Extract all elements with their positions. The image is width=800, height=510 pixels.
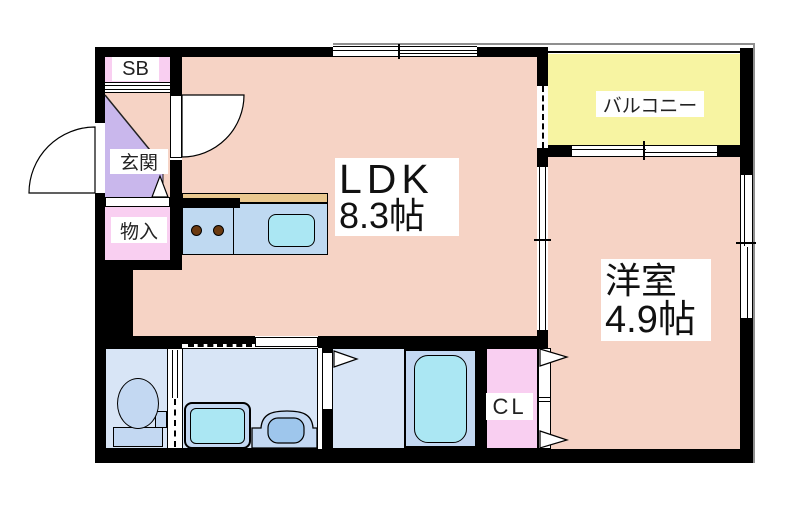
wall-block-left — [95, 260, 133, 348]
ldk-western-sliding-door-tick — [534, 239, 551, 241]
partition-dashed-line — [542, 86, 544, 148]
ldk-western-sliding-door-pane — [539, 167, 540, 330]
toilet-door-pane — [177, 350, 178, 398]
wall-block-top — [133, 260, 182, 270]
wall-left-upper — [95, 47, 105, 123]
wall-balcony-stub-right — [717, 145, 740, 157]
western-room-label: 洋室 4.9帖 — [601, 259, 711, 341]
closet-door-tick — [538, 397, 551, 398]
closet-label-text: CL — [492, 394, 526, 420]
wall-right-upper — [740, 48, 753, 175]
balcony-sliding-door-pane — [644, 152, 717, 153]
bathroom-door — [322, 352, 333, 410]
wall-bath-closet-divider — [477, 348, 486, 449]
balcony-sliding-door-pane — [572, 149, 646, 150]
wall-washroom-top — [182, 336, 255, 344]
ldk-top-window-pane — [333, 50, 477, 51]
kitchen-sink — [268, 214, 315, 247]
entrance-floor — [105, 93, 170, 197]
ldk-top-window-pane — [398, 53, 477, 54]
shoebox-shelf-line — [105, 89, 170, 90]
ldk-top-window-tick — [398, 44, 400, 59]
shadow-line-right — [753, 43, 755, 463]
ldk-top-window — [333, 46, 477, 57]
wall-entrance-right-mid — [170, 160, 182, 270]
toilet-bowl — [117, 378, 159, 429]
wall-partition-low — [537, 330, 548, 348]
wall-entrance-right-top — [170, 47, 182, 95]
balcony-sliding-door-tick — [643, 141, 645, 160]
shoebox-shelf — [105, 82, 170, 93]
wall-partition-top — [537, 47, 548, 86]
wall-bath-closet-top — [318, 336, 538, 348]
entrance-threshold — [105, 197, 170, 207]
ldk-label: LDK 8.3帖 — [335, 158, 459, 236]
closet-door — [538, 348, 551, 449]
entrance-label-text: 玄関 — [120, 148, 158, 175]
kitchen-counter-divider — [233, 203, 234, 255]
bathtub — [414, 355, 467, 443]
western-window-tick — [736, 242, 756, 244]
shoebox-shelf-line — [105, 85, 170, 86]
entrance-label: 玄関 — [110, 149, 168, 174]
western-room-size-text: 4.9帖 — [605, 301, 696, 339]
floor-plan: SB 玄関 物入 LDK 8.3帖 バルコニー 洋室 4.9帖 CL — [0, 0, 800, 510]
entrance-door-opening — [170, 95, 182, 158]
storage-label: 物入 — [111, 217, 167, 243]
wall-partition-mid — [537, 148, 548, 167]
balcony-label: バルコニー — [596, 91, 704, 117]
wall-top-left — [95, 47, 333, 57]
ldk-name-text: LDK — [339, 160, 434, 198]
stove-burner — [213, 225, 224, 236]
shadow-line-top — [333, 43, 755, 45]
ldk-western-sliding-door-pane — [545, 167, 546, 330]
wall-bottom — [95, 449, 753, 463]
stove-burner — [191, 225, 202, 236]
wall-right-lower — [740, 318, 753, 449]
western-room-name-text: 洋室 — [605, 261, 677, 301]
toilet-door-pane — [172, 350, 173, 398]
front-door-swing — [29, 127, 95, 193]
western-window-pane — [747, 247, 748, 318]
ldk-floor-notch — [133, 270, 182, 336]
closet-label: CL — [486, 393, 533, 420]
toilet-tank — [113, 427, 163, 447]
western-window-pane — [744, 175, 745, 246]
shoebox-label-text: SB — [122, 58, 149, 81]
storage-label-text: 物入 — [120, 217, 158, 244]
shoebox-label: SB — [112, 57, 159, 81]
washing-machine-tub — [190, 408, 245, 444]
washroom-sliding-door-panel — [255, 337, 318, 347]
ldk-size-text: 8.3帖 — [339, 198, 425, 234]
wall-kitchen-stub — [182, 198, 240, 208]
closet-door-tick — [538, 401, 551, 402]
washroom-sliding-door-dashes — [188, 344, 252, 347]
wall-block-bottom — [133, 336, 182, 348]
wall-balcony-stub-left — [548, 145, 572, 157]
balcony-railing — [548, 51, 740, 53]
toilet-door-dashed — [174, 399, 176, 447]
wall-bathdoor-lower — [322, 410, 333, 449]
balcony-label-text: バルコニー — [603, 91, 698, 118]
